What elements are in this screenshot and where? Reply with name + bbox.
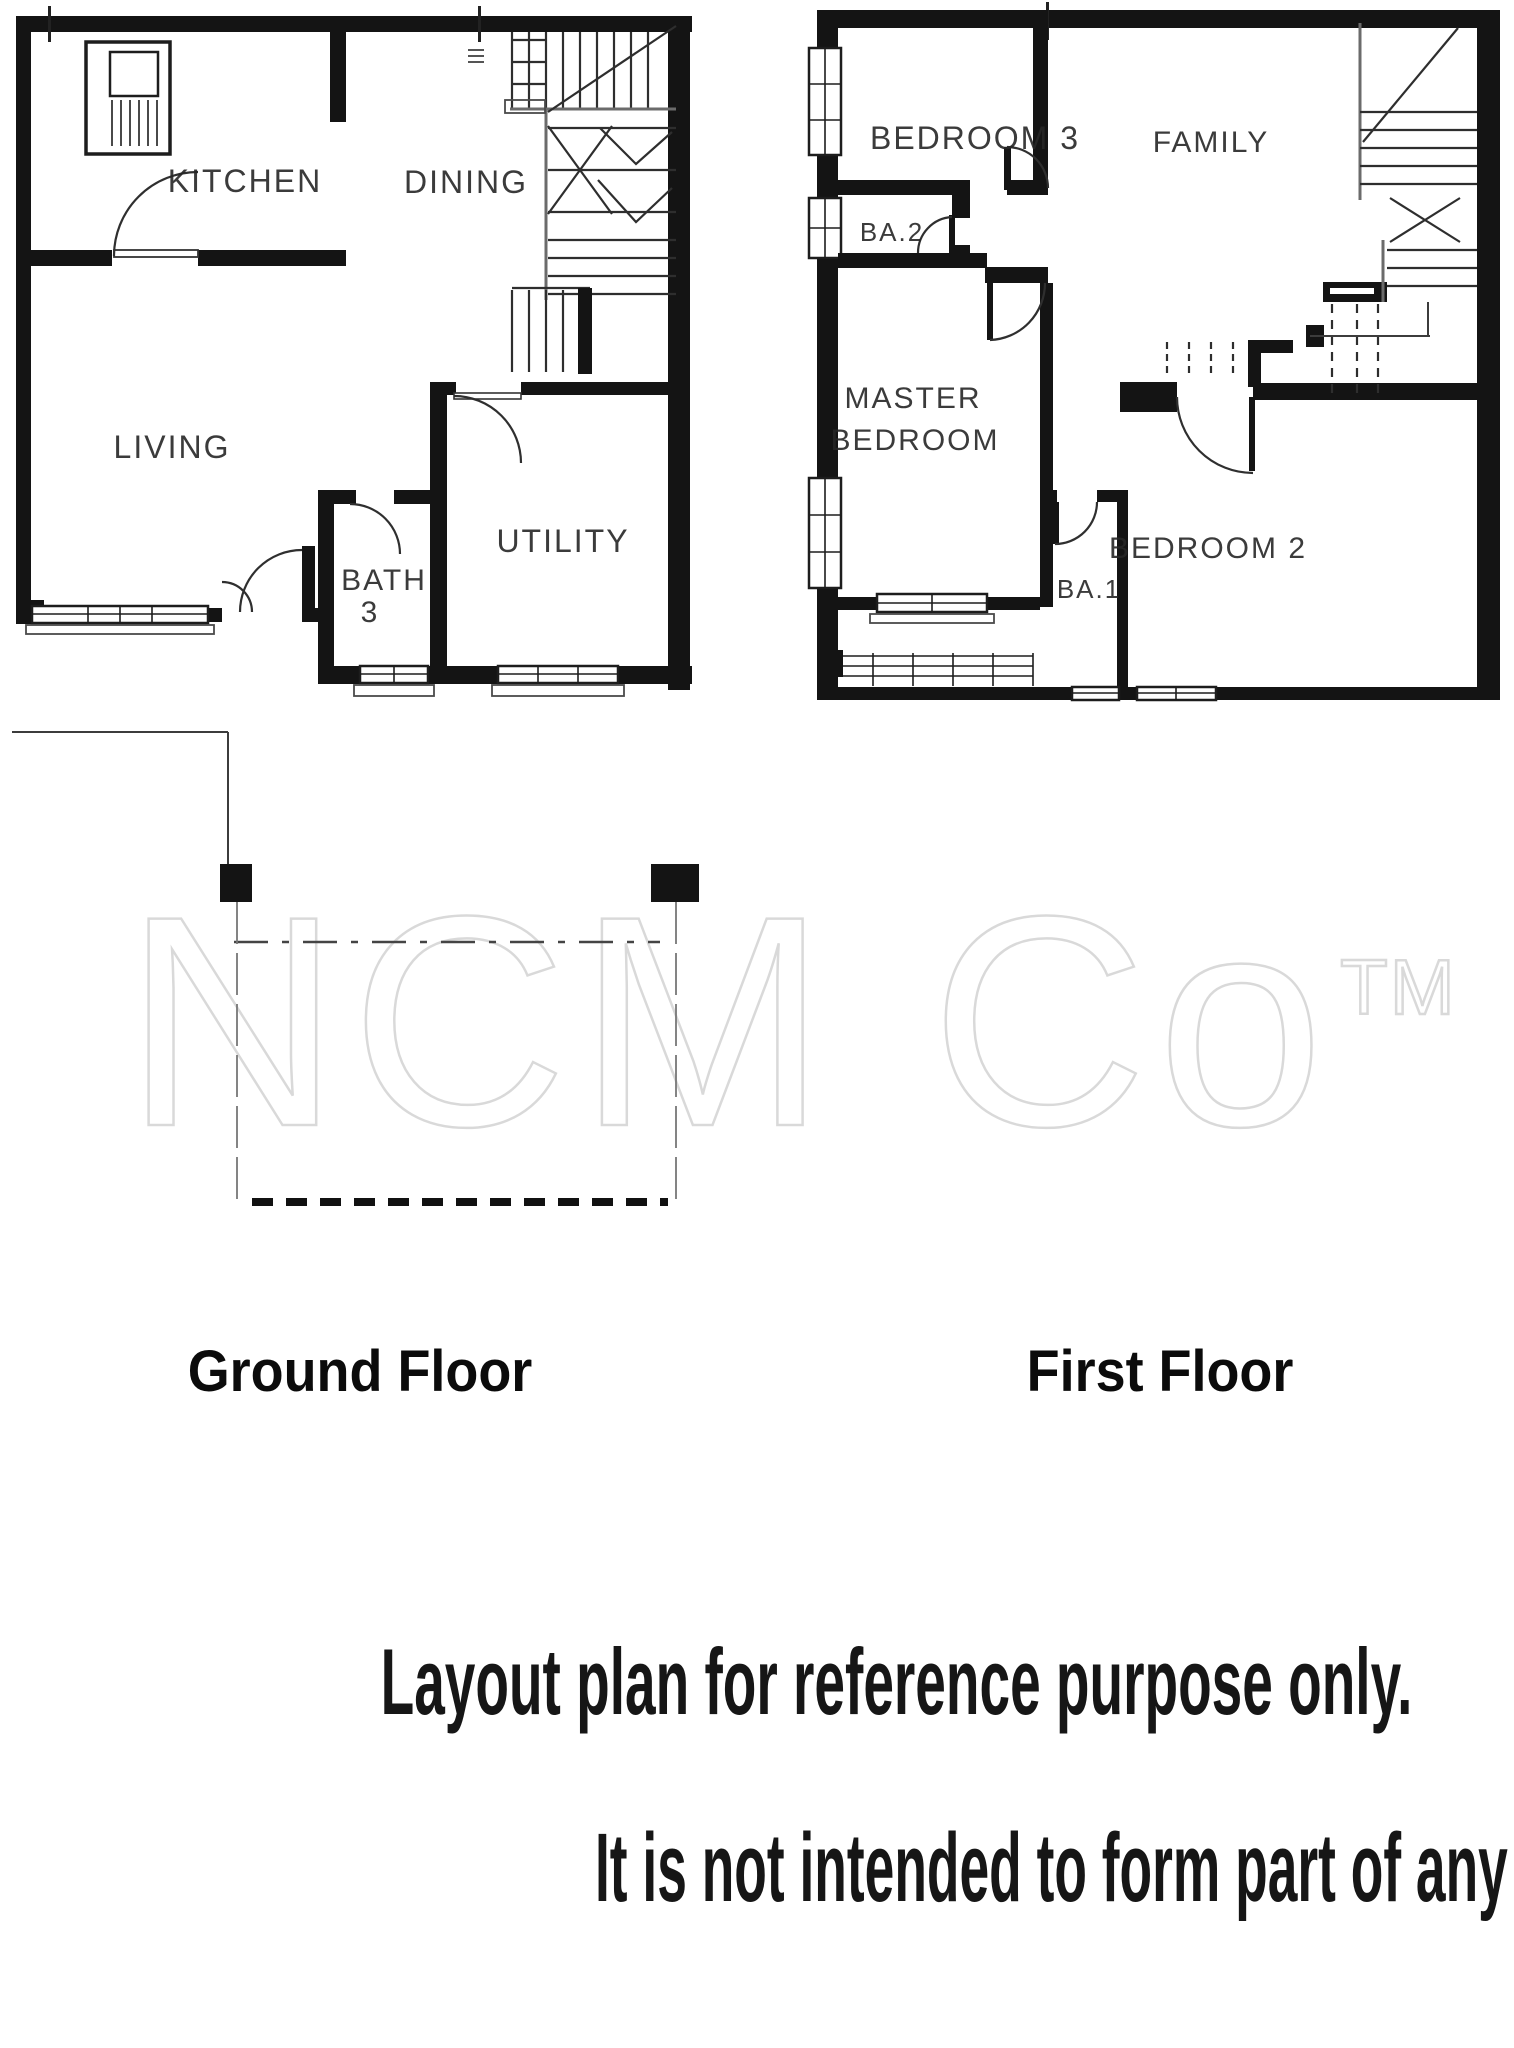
stair-direction-arrow (600, 128, 672, 164)
ba1-door-arc (1053, 502, 1097, 544)
dining-label: DINING (404, 164, 528, 200)
first-bottom-windows (870, 594, 1216, 700)
porch-post (220, 864, 252, 902)
ground-floor-title: Ground Floor (155, 1338, 564, 1405)
disclaimer-line-1-text: Layout plan for reference purpose only. (381, 1628, 1413, 1736)
disclaimer-line-1: Layout plan for reference purpose only. (0, 1628, 1514, 1736)
first-stairs (1167, 23, 1477, 398)
bath-door-arc (350, 504, 400, 554)
master-door-arc (987, 283, 1045, 340)
ground-porch (12, 732, 699, 1204)
master-bedroom-label-line1: MASTER (844, 382, 981, 415)
bedroom3-label: BEDROOM 3 (870, 120, 1080, 156)
disclaimer-line-2: It is not intended to form part of any c… (0, 1812, 1514, 1924)
kitchen-label: KITCHEN (168, 163, 322, 199)
ba1-label: BA.1 (1057, 574, 1121, 604)
ba2-label: BA.2 (860, 217, 924, 247)
ground-stairs (468, 26, 676, 374)
living-label: LIVING (114, 429, 231, 465)
trademark-symbol: TM (1340, 943, 1457, 1031)
disclaimer-line-2-text: It is not intended to form part of any c… (595, 1812, 1514, 1924)
living-door-arc (222, 546, 315, 612)
floor-plan-sheet: NCM CoTM (0, 0, 1514, 2048)
kitchen-entry-door-icon (86, 42, 170, 154)
bedroom2-label: BEDROOM 2 (1109, 532, 1307, 565)
ground-room-labels: KITCHEN DINING LIVING BATH 3 UTILITY (114, 163, 630, 629)
family-label: FAMILY (1153, 126, 1269, 159)
bath3-label-line2: 3 (361, 596, 380, 629)
utility-door-arc (454, 393, 521, 463)
first-floor-plan: BEDROOM 3 FAMILY BA.2 MASTER BEDROOM BA.… (790, 0, 1514, 760)
ground-floor-plan: KITCHEN DINING LIVING BATH 3 UTILITY (0, 0, 760, 1240)
bath3-label-line1: BATH (341, 564, 427, 597)
first-floor-title: First Floor (955, 1338, 1364, 1405)
porch-post (651, 864, 699, 902)
dimension-tick (478, 6, 481, 42)
ground-kitchen-walls (16, 32, 346, 266)
bedroom2-door-arc (1177, 397, 1255, 473)
first-balcony (818, 650, 1033, 686)
utility-label: UTILITY (496, 523, 629, 559)
stair-direction-arrow (598, 180, 672, 222)
master-bedroom-label-line2: BEDROOM (830, 424, 999, 457)
dimension-tick (48, 6, 51, 42)
